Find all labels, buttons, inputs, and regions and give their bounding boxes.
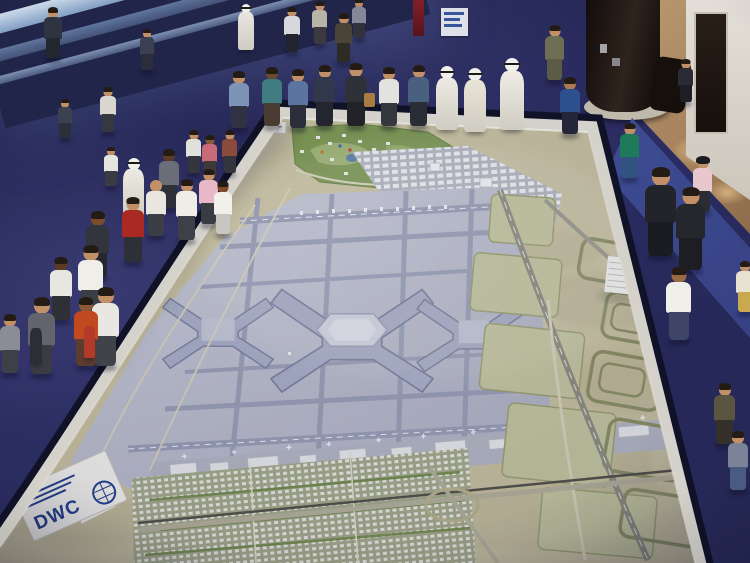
exhibition-hall-photo: DWC: [0, 0, 750, 563]
airport-model-svg: DWC: [0, 0, 750, 563]
